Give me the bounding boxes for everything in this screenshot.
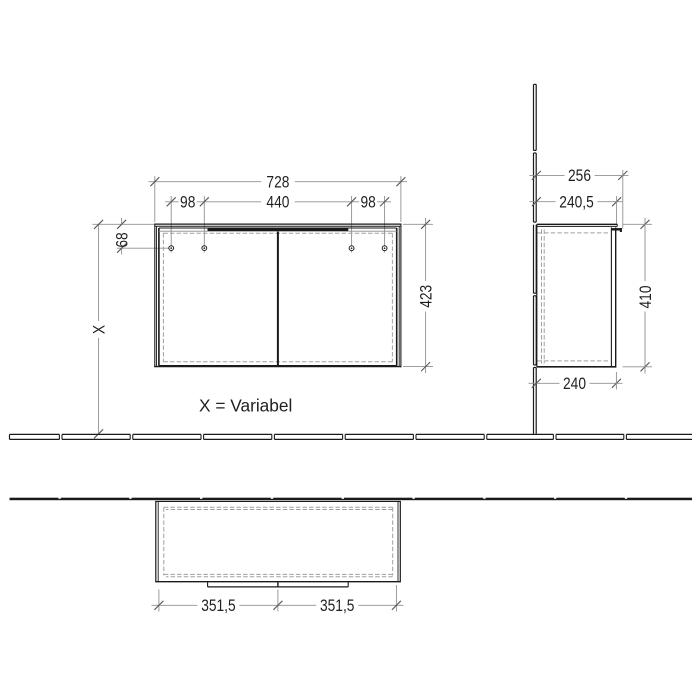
svg-text:256: 256 xyxy=(568,167,591,185)
svg-text:440: 440 xyxy=(266,194,289,212)
svg-text:98: 98 xyxy=(360,194,375,212)
svg-text:240: 240 xyxy=(563,375,586,393)
svg-text:351,5: 351,5 xyxy=(201,597,235,615)
svg-text:X = Variabel: X = Variabel xyxy=(199,396,292,416)
svg-text:423: 423 xyxy=(417,285,435,308)
svg-text:351,5: 351,5 xyxy=(320,597,354,615)
svg-text:240,5: 240,5 xyxy=(559,193,593,211)
svg-text:68: 68 xyxy=(113,232,131,247)
svg-text:98: 98 xyxy=(180,194,195,212)
svg-text:410: 410 xyxy=(637,286,655,309)
svg-text:728: 728 xyxy=(266,173,289,191)
svg-text:X: X xyxy=(90,325,108,334)
